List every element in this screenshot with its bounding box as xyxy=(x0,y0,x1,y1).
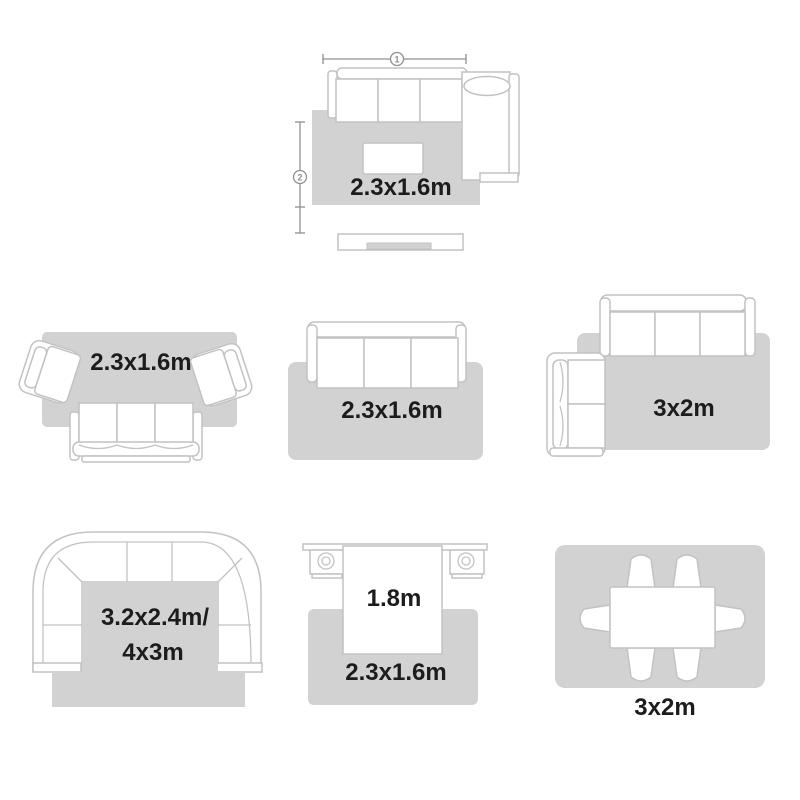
height-dimension-line: 2 xyxy=(294,122,307,233)
nightstand-right-icon xyxy=(450,550,484,578)
rug-size-label-line1: 3.2x2.4m/ xyxy=(101,604,209,631)
layout-bottom-right-dining: 3x2m xyxy=(555,545,765,721)
dining-table-icon xyxy=(610,587,715,648)
height-marker-number: 2 xyxy=(297,173,302,183)
diagram-canvas: 1 2 2.3x1.6m xyxy=(0,0,800,800)
layout-bottom-left-curved-sectional: 3.2x2.4m/ 4x3m xyxy=(33,532,262,707)
rug-size-label: 3x2m xyxy=(634,694,695,721)
rug-size-label: 2.3x1.6m xyxy=(350,174,451,201)
coffee-table-icon xyxy=(363,143,423,174)
rug-size-label: 3x2m xyxy=(653,395,714,422)
width-dimension-line: 1 xyxy=(323,53,466,66)
nightstand-left-icon xyxy=(310,550,344,578)
sofa-icon xyxy=(307,322,466,388)
tv-console-icon xyxy=(338,234,463,250)
rug-size-label-line2: 4x3m xyxy=(122,639,183,666)
loveseat-icon xyxy=(547,353,605,456)
sofa-icon xyxy=(70,403,202,462)
layout-mid-center-sofa: 2.3x1.6m xyxy=(288,322,483,460)
bed-width-label: 1.8m xyxy=(367,585,422,612)
rug-size-label: 2.3x1.6m xyxy=(345,659,446,686)
layout-bottom-center-bed: 1.8m 2.3x1.6m xyxy=(303,544,487,705)
layout-mid-left-armchairs-sofa: 2.3x1.6m xyxy=(17,332,254,462)
layout-top-chaise-sectional: 1 2 2.3x1.6m xyxy=(294,53,520,251)
rug-size-guide-diagram: 1 2 2.3x1.6m xyxy=(0,0,800,800)
rug-size-label: 2.3x1.6m xyxy=(341,397,442,424)
width-marker-number: 1 xyxy=(394,55,399,65)
rug-size-label: 2.3x1.6m xyxy=(90,349,191,376)
sofa-icon xyxy=(600,295,755,356)
layout-mid-right-sofa-loveseat: 3x2m xyxy=(547,295,770,456)
